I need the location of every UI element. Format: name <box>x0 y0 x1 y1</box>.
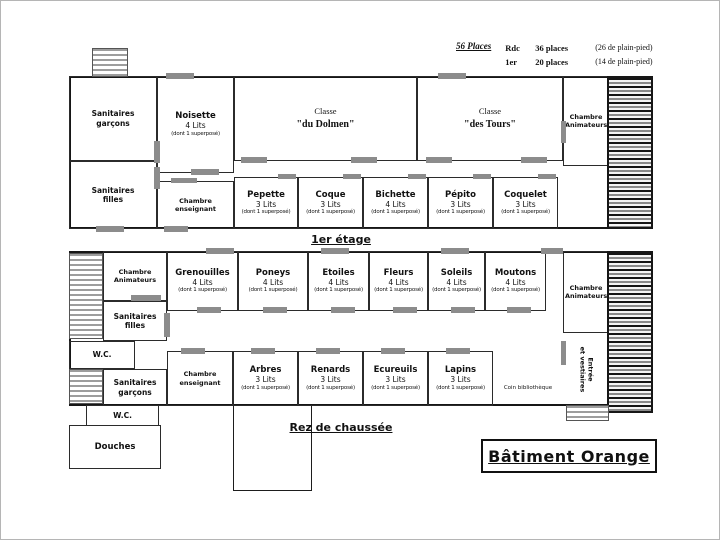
door-marker <box>451 307 475 313</box>
room-sanitaires-garcons-f0: Sanitaires garçons <box>103 369 167 406</box>
room-name: Ecureuils <box>374 365 418 375</box>
room-name: Chambre Animateurs <box>565 113 607 129</box>
room-wc-left: W.C. <box>69 341 135 369</box>
door-marker <box>473 174 491 179</box>
room-beds: 4 Lits <box>505 278 525 287</box>
door-marker <box>197 307 221 313</box>
door-marker <box>521 157 547 163</box>
room-beds: 4 Lits <box>192 278 212 287</box>
room-name: Fleurs <box>384 268 414 278</box>
room-beds: 4 Lits <box>388 278 408 287</box>
door-marker <box>191 169 219 175</box>
room-moutons: Moutons 4 Lits (dont 1 superposé) <box>485 251 546 311</box>
capacity-row-1er: 1er 20 places (14 de plain-pied) <box>505 55 652 69</box>
room-ecureuils: Ecureuils 3 Lits (dont 1 superposé) <box>363 351 428 406</box>
room-note: (dont 1 superposé) <box>501 209 550 216</box>
room-name: W.C. <box>93 350 112 359</box>
room-note: (dont 1 superposé) <box>314 287 363 294</box>
room-name: Coquelet <box>504 190 547 200</box>
room-name: Sanitaires garçons <box>83 109 143 128</box>
room-grenouilles: Grenouilles 4 Lits (dont 1 superposé) <box>167 251 238 311</box>
room-note: (dont 1 superposé) <box>178 287 227 294</box>
room-note: (dont 1 superposé) <box>249 287 298 294</box>
floor-note: (14 de plain-pied) <box>595 55 652 69</box>
window-marker <box>438 73 466 79</box>
door-marker <box>446 348 470 354</box>
room-sanitaires-filles-f1: Sanitaires filles <box>69 161 157 229</box>
floor1-exterior-stairs-icon <box>92 48 128 77</box>
room-name: Renards <box>311 365 350 375</box>
room-classe-tours: Classe "des Tours" <box>417 76 563 161</box>
room-chambre-enseignant-f1: Chambre enseignant <box>157 181 234 229</box>
exterior-wall <box>311 406 312 491</box>
room-beds: 3 Lits <box>450 375 470 384</box>
floor-abbrev: 1er <box>505 55 527 69</box>
room-etoiles: Etoiles 4 Lits (dont 1 superposé) <box>308 251 369 311</box>
door-marker <box>181 348 205 354</box>
floor-abbrev: Rdc <box>505 41 527 55</box>
room-name: W.C. <box>113 411 132 420</box>
room-note: (dont 1 superposé) <box>306 209 355 216</box>
window-marker <box>541 248 563 254</box>
room-name: Soleils <box>441 268 473 278</box>
room-chambre-animateurs-left-f0: Chambre Animateurs <box>103 251 167 301</box>
window-marker <box>164 226 188 232</box>
hatched-area-bottom-icon <box>69 369 103 404</box>
window-marker <box>96 226 124 232</box>
door-marker <box>164 313 170 337</box>
classroom-name: "des Tours" <box>464 118 516 131</box>
exterior-wall <box>233 490 312 491</box>
door-marker <box>561 341 566 365</box>
room-name: Chambre enseignant <box>176 370 224 386</box>
room-soleils: Soleils 4 Lits (dont 1 superposé) <box>428 251 485 311</box>
room-lapins: Lapins 3 Lits (dont 1 superposé) <box>428 351 493 406</box>
room-note: (dont 1 superposé) <box>306 385 355 392</box>
room-note: (dont 1 superposé) <box>241 385 290 392</box>
entree-label: Entrée et vestiaires <box>578 347 595 393</box>
room-note: (dont 1 superposé) <box>432 287 481 294</box>
floor-places: 20 places <box>535 55 587 69</box>
classroom-name: "du Dolmen" <box>296 118 354 131</box>
room-note: (dont 1 superposé) <box>242 209 291 216</box>
door-marker <box>381 348 405 354</box>
hatched-area-top-icon <box>69 253 103 339</box>
floor-places: 36 places <box>535 41 587 55</box>
capacity-row-rdc: Rdc 36 places (26 de plain-pied) <box>505 41 652 55</box>
room-name: Arbres <box>250 365 282 375</box>
room-beds: 3 Lits <box>385 375 405 384</box>
door-marker <box>278 174 296 179</box>
floor0-label: Rez de chaussée <box>251 421 431 434</box>
room-note: (dont 1 superposé) <box>436 385 485 392</box>
room-beds: 3 Lits <box>255 375 275 384</box>
room-beds: 3 Lits <box>320 375 340 384</box>
door-marker <box>131 295 161 301</box>
room-beds: 3 Lits <box>450 200 470 209</box>
door-marker <box>561 121 566 143</box>
room-pepito: Pépito 3 Lits (dont 1 superposé) <box>428 177 493 229</box>
door-marker <box>171 178 197 183</box>
entree-line1: Entrée <box>586 347 594 393</box>
room-classe-dolmen: Classe "du Dolmen" <box>234 76 417 161</box>
room-name: Bichette <box>375 190 415 200</box>
entree-vestiaires-area: Entrée et vestiaires <box>563 333 609 406</box>
room-note: (dont 1 superposé) <box>371 209 420 216</box>
room-chambre-enseignant-f0: Chambre enseignant <box>167 351 233 406</box>
coin-bibliotheque-label: Coin bibliothèque <box>493 385 563 399</box>
total-places: 56 Places <box>456 41 491 69</box>
door-marker <box>408 174 426 179</box>
room-name: Chambre Animateurs <box>565 284 607 300</box>
door-marker <box>538 174 556 179</box>
room-douches: Douches <box>69 425 161 469</box>
room-name: Grenouilles <box>175 268 229 278</box>
door-marker <box>316 348 340 354</box>
room-pepette: Pepette 3 Lits (dont 1 superposé) <box>234 177 298 229</box>
room-name: Sanitaires garçons <box>108 378 163 397</box>
room-name: Noisette <box>175 111 216 121</box>
room-note: (dont 1 superposé) <box>371 385 420 392</box>
room-beds: 4 Lits <box>263 278 283 287</box>
door-marker <box>263 307 287 313</box>
room-name: Pépito <box>445 190 476 200</box>
floor1-staircase-icon <box>607 76 653 229</box>
room-fleurs: Fleurs 4 Lits (dont 1 superposé) <box>369 251 428 311</box>
room-beds: 4 Lits <box>328 278 348 287</box>
room-arbres: Arbres 3 Lits (dont 1 superposé) <box>233 351 298 406</box>
floorplan-page: 56 Places Rdc 36 places (26 de plain-pie… <box>0 0 720 540</box>
room-note: (dont 1 superposé) <box>171 131 220 138</box>
room-name: Douches <box>95 442 136 453</box>
room-name: Coque <box>316 190 346 200</box>
door-marker <box>393 307 417 313</box>
floor-note: (26 de plain-pied) <box>595 41 652 55</box>
building-title-box: Bâtiment Orange <box>481 439 657 473</box>
window-marker <box>166 73 194 79</box>
room-beds: 3 Lits <box>320 200 340 209</box>
room-note: (dont 1 superposé) <box>374 287 423 294</box>
door-marker <box>331 307 355 313</box>
floor1-label: 1er étage <box>251 233 431 246</box>
entree-line2: et vestiaires <box>578 347 586 393</box>
room-name: Sanitaires filles <box>83 186 143 205</box>
room-coquelet: Coquelet 3 Lits (dont 1 superposé) <box>493 177 558 229</box>
room-bichette: Bichette 4 Lits (dont 1 superposé) <box>363 177 428 229</box>
room-name: Chambre enseignant <box>170 197 222 213</box>
room-note: (dont 1 superposé) <box>436 209 485 216</box>
room-name: Pepette <box>247 190 285 200</box>
room-note: (dont 1 superposé) <box>491 287 540 294</box>
room-poneys: Poneys 4 Lits (dont 1 superposé) <box>238 251 308 311</box>
window-marker <box>321 248 349 254</box>
room-renards: Renards 3 Lits (dont 1 superposé) <box>298 351 363 406</box>
room-beds: 4 Lits <box>185 121 205 130</box>
room-name: Lapins <box>445 365 476 375</box>
door-marker <box>154 167 160 189</box>
room-sanitaires-filles-f0: Sanitaires filles <box>103 301 167 341</box>
classroom-type: Classe <box>314 106 336 118</box>
room-name: Chambre Animateurs <box>113 268 157 284</box>
door-marker <box>426 157 452 163</box>
room-beds: 3 Lits <box>256 200 276 209</box>
room-chambre-animateurs-right-f0: Chambre Animateurs <box>563 251 609 333</box>
room-sanitaires-garcons-f1: Sanitaires garçons <box>69 76 157 161</box>
door-marker <box>343 174 361 179</box>
room-chambre-animateurs-f1: Chambre Animateurs <box>563 76 609 166</box>
door-marker <box>351 157 377 163</box>
capacity-rows: Rdc 36 places (26 de plain-pied) 1er 20 … <box>505 41 652 69</box>
building-title: Bâtiment Orange <box>488 447 650 466</box>
room-wc-annex: W.C. <box>86 405 159 426</box>
room-name: Sanitaires filles <box>108 312 163 331</box>
room-name: Poneys <box>256 268 291 278</box>
door-marker <box>241 157 267 163</box>
room-noisette: Noisette 4 Lits (dont 1 superposé) <box>157 76 234 173</box>
window-marker <box>441 248 469 254</box>
exterior-wall <box>233 406 234 491</box>
capacity-summary: 56 Places Rdc 36 places (26 de plain-pie… <box>456 41 653 69</box>
room-name: Etoiles <box>322 268 354 278</box>
door-marker <box>251 348 275 354</box>
room-beds: 3 Lits <box>515 200 535 209</box>
door-marker <box>507 307 531 313</box>
classroom-type: Classe <box>479 106 501 118</box>
room-beds: 4 Lits <box>385 200 405 209</box>
room-beds: 4 Lits <box>446 278 466 287</box>
room-coque: Coque 3 Lits (dont 1 superposé) <box>298 177 363 229</box>
window-marker <box>206 248 234 254</box>
entrance-steps-icon <box>566 405 609 421</box>
door-marker <box>154 141 160 163</box>
floor0-staircase-icon <box>607 251 653 413</box>
room-name: Moutons <box>495 268 536 278</box>
